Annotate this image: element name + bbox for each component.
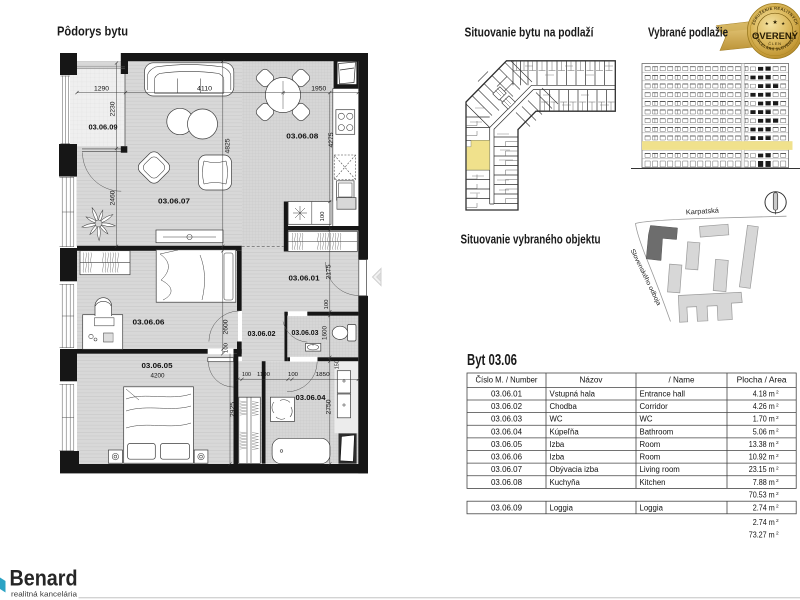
svg-text:150: 150 bbox=[335, 360, 341, 369]
svg-text:OVERENÝ: OVERENÝ bbox=[752, 30, 798, 41]
svg-text:1290: 1290 bbox=[94, 85, 110, 92]
svg-text:2: 2 bbox=[776, 478, 779, 484]
svg-text:WC: WC bbox=[550, 415, 563, 424]
svg-text:Situovanie bytu na podlaží: Situovanie bytu na podlaží bbox=[465, 25, 594, 39]
svg-text:100: 100 bbox=[288, 372, 298, 378]
svg-text:1600: 1600 bbox=[322, 325, 329, 340]
svg-text:2: 2 bbox=[776, 402, 779, 408]
svg-text:03.06.02: 03.06.02 bbox=[491, 402, 522, 411]
svg-text:Vybrané podlažie: Vybrané podlažie bbox=[648, 25, 728, 39]
svg-text:Loggia: Loggia bbox=[550, 503, 574, 512]
svg-text:2: 2 bbox=[776, 415, 779, 421]
svg-text:73.27 m: 73.27 m bbox=[749, 530, 775, 539]
svg-text:realitná kancelária: realitná kancelária bbox=[11, 590, 78, 599]
svg-text:4825: 4825 bbox=[225, 138, 232, 154]
svg-text:2: 2 bbox=[776, 518, 779, 524]
svg-text:03.06.05: 03.06.05 bbox=[142, 361, 174, 370]
svg-text:03.06.04: 03.06.04 bbox=[296, 393, 327, 402]
svg-text:2: 2 bbox=[776, 453, 779, 459]
svg-text:23.15 m: 23.15 m bbox=[749, 465, 775, 474]
svg-text:03.06.01: 03.06.01 bbox=[491, 390, 522, 399]
svg-text:03.06.09: 03.06.09 bbox=[491, 503, 522, 512]
svg-text:Obývacia izba: Obývacia izba bbox=[550, 465, 600, 474]
svg-text:Kitchen: Kitchen bbox=[640, 478, 666, 487]
svg-text:03.06.03: 03.06.03 bbox=[491, 415, 522, 424]
svg-text:03.06.08: 03.06.08 bbox=[491, 478, 522, 487]
svg-text:1.70 m: 1.70 m bbox=[753, 415, 775, 424]
svg-text:2230: 2230 bbox=[110, 101, 117, 117]
svg-text:Izba: Izba bbox=[550, 453, 565, 462]
svg-text:Číslo M. / Number: Číslo M. / Number bbox=[476, 376, 538, 385]
svg-text:100: 100 bbox=[224, 343, 230, 353]
svg-text:4200: 4200 bbox=[151, 373, 166, 380]
svg-text:03.06.06: 03.06.06 bbox=[133, 318, 165, 327]
svg-text:2: 2 bbox=[776, 465, 779, 471]
svg-text:03.06.07: 03.06.07 bbox=[158, 197, 190, 206]
svg-text:10.92 m: 10.92 m bbox=[749, 453, 775, 462]
svg-text:Izba: Izba bbox=[550, 440, 565, 449]
svg-text:Room: Room bbox=[640, 440, 661, 449]
svg-text:2: 2 bbox=[776, 440, 779, 446]
svg-text:Názov: Názov bbox=[580, 376, 603, 385]
svg-text:03.06.03: 03.06.03 bbox=[292, 328, 319, 337]
svg-text:03.06.07: 03.06.07 bbox=[491, 465, 522, 474]
svg-text:/ Name: / Name bbox=[669, 376, 695, 385]
svg-text:2750: 2750 bbox=[326, 399, 333, 415]
svg-text:2: 2 bbox=[776, 428, 779, 434]
svg-text:1950: 1950 bbox=[311, 85, 327, 92]
svg-text:03.06.09: 03.06.09 bbox=[89, 123, 118, 132]
svg-text:4275: 4275 bbox=[328, 132, 335, 148]
svg-text:70.53 m: 70.53 m bbox=[749, 491, 775, 500]
svg-text:Situovanie vybraného objektu: Situovanie vybraného objektu bbox=[461, 233, 601, 247]
svg-text:100: 100 bbox=[242, 372, 251, 378]
svg-text:2175: 2175 bbox=[326, 264, 333, 280]
svg-text:Entrance hall: Entrance hall bbox=[640, 390, 686, 399]
svg-text:Karpatská: Karpatská bbox=[686, 207, 719, 216]
svg-text:2: 2 bbox=[776, 390, 779, 396]
svg-text:★: ★ bbox=[772, 19, 777, 26]
svg-text:7.88 m: 7.88 m bbox=[753, 478, 775, 487]
svg-text:2.74 m: 2.74 m bbox=[753, 518, 775, 527]
svg-text:2.74 m: 2.74 m bbox=[753, 503, 775, 512]
svg-text:100: 100 bbox=[324, 300, 330, 310]
svg-text:Loggia: Loggia bbox=[640, 503, 664, 512]
svg-text:03.06.01: 03.06.01 bbox=[289, 273, 321, 282]
svg-text:Kúpeľňa: Kúpeľňa bbox=[550, 427, 580, 436]
svg-text:03.06.02: 03.06.02 bbox=[248, 329, 276, 338]
svg-text:03.06.06: 03.06.06 bbox=[491, 453, 522, 462]
svg-text:Byt 03.06: Byt 03.06 bbox=[467, 352, 517, 369]
svg-text:5.06 m: 5.06 m bbox=[753, 427, 775, 436]
svg-text:2: 2 bbox=[776, 491, 779, 497]
svg-text:03.06.04: 03.06.04 bbox=[491, 427, 523, 436]
svg-text:Corridor: Corridor bbox=[640, 402, 669, 411]
svg-text:Chodba: Chodba bbox=[550, 402, 578, 411]
svg-text:ČLEN: ČLEN bbox=[768, 41, 781, 46]
svg-text:Kuchyňa: Kuchyňa bbox=[550, 478, 581, 487]
svg-text:4.18 m: 4.18 m bbox=[753, 390, 775, 399]
svg-text:100: 100 bbox=[320, 212, 326, 222]
svg-text:2600: 2600 bbox=[223, 319, 230, 335]
svg-text:Living room: Living room bbox=[640, 465, 680, 474]
svg-text:WC: WC bbox=[640, 415, 653, 424]
svg-text:4.26 m: 4.26 m bbox=[753, 402, 775, 411]
svg-text:Plocha / Area: Plocha / Area bbox=[737, 376, 788, 385]
svg-text:2460: 2460 bbox=[110, 190, 117, 206]
svg-text:Benard: Benard bbox=[10, 566, 78, 591]
svg-text:2: 2 bbox=[776, 504, 779, 510]
svg-text:4110: 4110 bbox=[197, 85, 213, 92]
svg-text:Pôdorys bytu: Pôdorys bytu bbox=[57, 25, 128, 39]
svg-text:03.06.05: 03.06.05 bbox=[491, 440, 523, 449]
svg-text:Room: Room bbox=[640, 453, 661, 462]
svg-text:2925: 2925 bbox=[230, 401, 237, 417]
svg-text:Vstupná hala: Vstupná hala bbox=[550, 390, 596, 399]
svg-text:Bathroom: Bathroom bbox=[640, 427, 674, 436]
svg-text:2: 2 bbox=[776, 531, 779, 537]
svg-text:1100: 1100 bbox=[257, 372, 270, 378]
svg-text:03.06.08: 03.06.08 bbox=[286, 131, 318, 140]
svg-text:13.38 m: 13.38 m bbox=[749, 440, 775, 449]
svg-text:1850: 1850 bbox=[316, 372, 330, 378]
